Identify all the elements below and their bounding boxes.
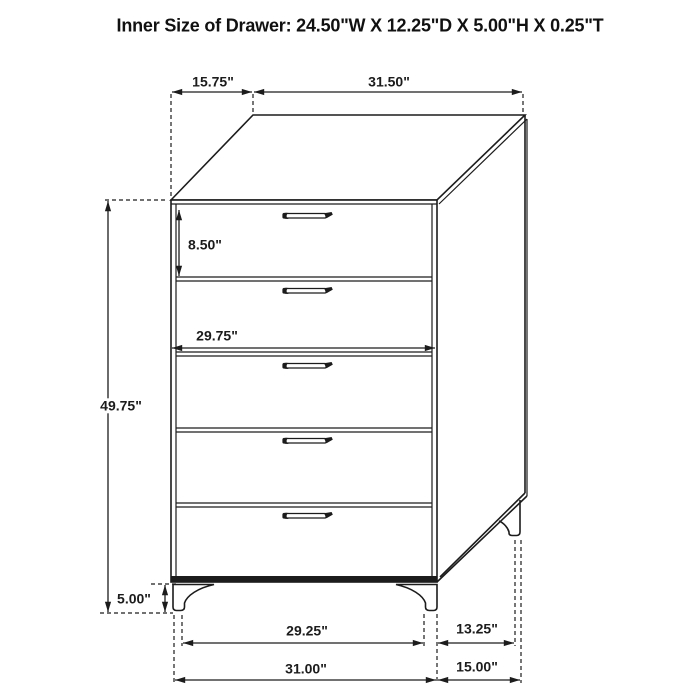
page-title: Inner Size of Drawer: 24.50"W X 12.25"D … — [117, 16, 604, 37]
dim-label-drawer-height: 8.50" — [186, 237, 224, 252]
front-right-leg — [396, 585, 437, 611]
dim-label-overall-height: 49.75" — [98, 398, 144, 413]
dim-label-leg-height: 5.00" — [115, 591, 153, 606]
chest-front-face — [171, 200, 437, 582]
dim-label-drawer-width: 29.75" — [194, 328, 240, 343]
front-legs — [173, 585, 437, 611]
drawer-handle — [283, 437, 333, 444]
drawer-handle — [283, 512, 333, 519]
chest-line-drawing — [0, 0, 700, 700]
base-rail — [171, 576, 437, 582]
side-panel-bottom-edge-lower — [437, 496, 527, 582]
dim-label-overall-width: 31.00" — [283, 661, 329, 676]
drawer-handle — [283, 287, 333, 294]
dim-label-top-width: 31.50" — [366, 74, 412, 89]
dim-label-foot-inner-width: 29.25" — [284, 623, 330, 638]
dim-label-foot-inner-depth: 13.25" — [454, 621, 500, 636]
dimension-diagram-page: Inner Size of Drawer: 24.50"W X 12.25"D … — [0, 0, 700, 700]
dim-label-overall-depth: 15.00" — [454, 659, 500, 674]
dim-label-top-depth: 15.75" — [190, 74, 236, 89]
chest-top-surface — [171, 115, 525, 200]
front-left-leg — [173, 585, 214, 611]
drawer-handle — [283, 212, 333, 219]
drawer-handle — [283, 362, 333, 369]
